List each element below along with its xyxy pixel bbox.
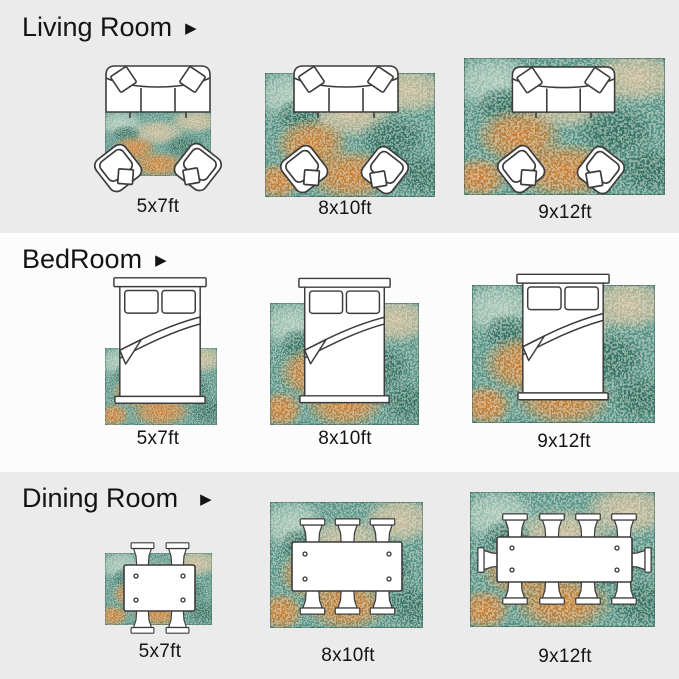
bed-icon — [296, 276, 393, 407]
bed-icon — [514, 271, 612, 405]
living-room-title: Living Room ▶ — [22, 13, 197, 43]
size-label: 9x12ft — [504, 431, 624, 453]
arrow-right-icon: ▶ — [155, 253, 167, 268]
bedroom-title-text: BedRoom — [22, 245, 142, 275]
dining-table-icon — [123, 564, 196, 612]
size-label: 8x10ft — [285, 198, 405, 220]
size-label: 5x7ft — [98, 196, 218, 218]
size-label: 8x10ft — [285, 428, 405, 450]
dining-room-title: Dining Room ▶ — [22, 484, 212, 514]
size-label: 8x10ft — [288, 645, 408, 667]
dining-table-icon — [496, 536, 633, 583]
size-label: 5x7ft — [100, 641, 220, 663]
size-label: 5x7ft — [98, 428, 218, 450]
dining-table-icon — [291, 541, 403, 592]
sofa-icon — [290, 62, 402, 120]
dining-room-title-text: Dining Room — [22, 484, 178, 514]
arrow-right-icon: ▶ — [185, 21, 197, 36]
sofa-icon — [508, 63, 619, 120]
living-room-title-text: Living Room — [22, 13, 172, 43]
sofa-icon — [102, 62, 214, 120]
size-label: 9x12ft — [505, 646, 625, 668]
bed-icon — [111, 275, 209, 408]
bedroom-title: BedRoom ▶ — [22, 245, 167, 275]
arrow-right-icon: ▶ — [200, 492, 212, 507]
rug-size-guide: Living Room ▶ 5x7ft 8x10ft 9x12ft BedRoo… — [0, 0, 679, 679]
size-label: 9x12ft — [505, 202, 625, 224]
